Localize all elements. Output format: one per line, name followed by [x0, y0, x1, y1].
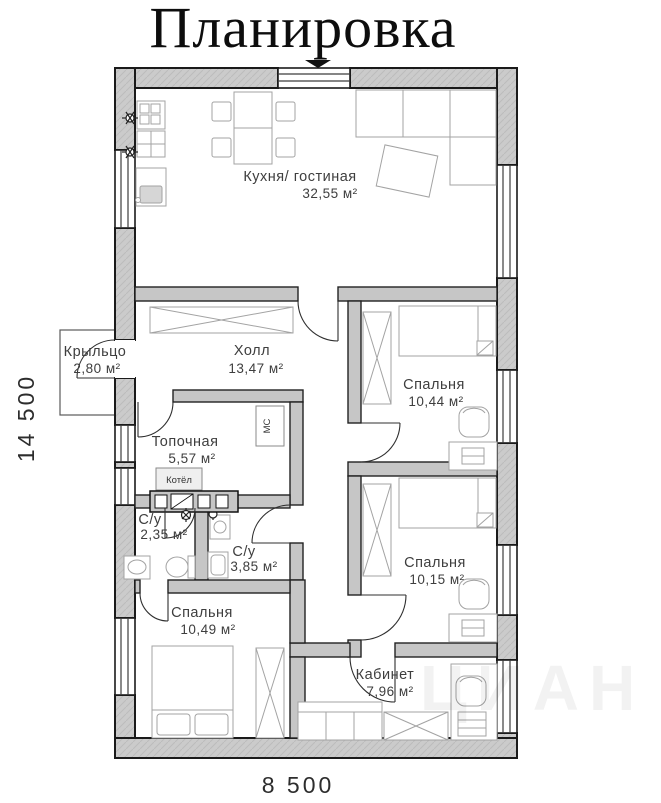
washing-machine-label: МС	[262, 418, 273, 433]
area-hall: 13,47 м²	[228, 361, 283, 376]
label-bathroom-2: С/у	[232, 544, 256, 560]
label-bedroom-1: Спальня	[403, 377, 465, 393]
boiler-label: Котёл	[166, 475, 192, 486]
label-porch: Крыльцо	[64, 344, 127, 360]
label-study: Кабинет	[356, 667, 415, 683]
hall-wardrobe	[150, 307, 293, 333]
sofa	[356, 90, 496, 137]
area-bedroom-1: 10,44 м²	[408, 394, 463, 409]
height-dimension: 14 500	[13, 374, 39, 462]
chimney-mark	[305, 60, 331, 68]
area-bathroom-2: 3,85 м²	[230, 559, 277, 574]
bedroom3-furniture	[152, 646, 284, 738]
chair	[459, 407, 489, 437]
width-dimension: 8 500	[262, 772, 335, 798]
sofa	[298, 702, 382, 740]
heating-manifold	[150, 491, 238, 512]
area-boiler-room: 5,57 м²	[168, 451, 215, 466]
floor-plan-svg: Кухня/ гостиная 32,55 м² Крыльцо 2,80 м²…	[0, 0, 661, 803]
floor-plan-page: Планировка	[0, 0, 661, 803]
area-kitchen-living: 32,55 м²	[302, 186, 357, 201]
label-bedroom-3: Спальня	[171, 605, 233, 621]
area-bedroom-3: 10,49 м²	[180, 622, 235, 637]
area-bedroom-2: 10,15 м²	[409, 572, 464, 587]
bathroom1-fixtures	[124, 556, 195, 579]
label-kitchen-living: Кухня/ гостиная	[243, 169, 356, 185]
watermark: ЦИАН	[420, 652, 645, 724]
coffee-table	[376, 145, 438, 197]
label-bedroom-2: Спальня	[404, 555, 466, 571]
bathroom2-fixtures	[208, 508, 230, 578]
toilet	[166, 557, 188, 577]
label-hall: Холл	[234, 343, 270, 359]
area-study: 7,96 м²	[366, 684, 413, 699]
area-porch: 2,80 м²	[73, 361, 120, 376]
area-bathroom-1: 2,35 м²	[140, 527, 187, 542]
label-bathroom-1: С/у	[138, 512, 162, 528]
label-boiler-room: Топочная	[152, 434, 219, 450]
